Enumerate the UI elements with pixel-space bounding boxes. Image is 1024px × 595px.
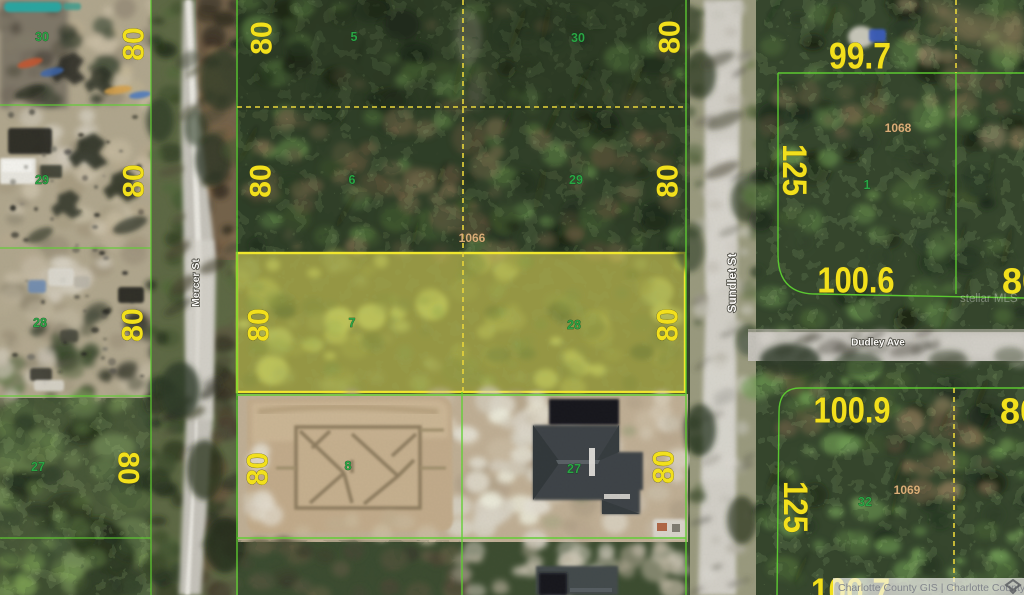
svg-text:5: 5	[351, 30, 358, 44]
svg-text:99.7: 99.7	[829, 36, 891, 77]
svg-text:6: 6	[349, 173, 356, 187]
svg-text:80: 80	[1000, 391, 1024, 432]
svg-text:28: 28	[33, 316, 47, 330]
svg-text:80: 80	[648, 450, 681, 483]
svg-text:29: 29	[35, 173, 49, 187]
svg-text:80: 80	[112, 451, 145, 484]
svg-text:Charlotte County GIS | Charlot: Charlotte County GIS | Charlotte County	[838, 582, 1024, 594]
svg-text:80: 80	[652, 308, 685, 341]
svg-text:Mercer St: Mercer St	[190, 259, 202, 307]
svg-text:80: 80	[654, 20, 687, 53]
svg-text:100.9: 100.9	[814, 390, 891, 431]
svg-text:125: 125	[776, 481, 814, 533]
svg-text:27: 27	[31, 460, 45, 474]
svg-text:27: 27	[567, 462, 581, 476]
svg-text:8: 8	[345, 459, 352, 473]
svg-text:80: 80	[245, 164, 278, 197]
svg-text:80: 80	[118, 164, 151, 197]
svg-text:80: 80	[652, 164, 685, 197]
svg-text:80: 80	[246, 21, 279, 54]
svg-text:29: 29	[569, 173, 583, 187]
svg-text:80: 80	[117, 308, 150, 341]
svg-text:28: 28	[567, 318, 581, 332]
svg-text:1066: 1066	[459, 231, 486, 245]
svg-text:7: 7	[349, 316, 356, 330]
svg-text:32: 32	[858, 495, 872, 509]
svg-text:30: 30	[35, 30, 49, 44]
svg-text:30: 30	[571, 31, 585, 45]
svg-text:80: 80	[118, 27, 151, 60]
svg-text:stellar MLS: stellar MLS	[960, 293, 1018, 305]
svg-text:Dudley Ave: Dudley Ave	[851, 338, 905, 349]
svg-text:100.6: 100.6	[818, 260, 895, 301]
svg-text:80: 80	[243, 308, 276, 341]
svg-text:125: 125	[775, 144, 813, 196]
svg-text:1069: 1069	[894, 483, 921, 497]
svg-text:1068: 1068	[885, 121, 912, 135]
svg-text:80: 80	[242, 452, 275, 485]
svg-text:Sundlet St: Sundlet St	[725, 253, 739, 312]
svg-text:1: 1	[864, 178, 871, 192]
